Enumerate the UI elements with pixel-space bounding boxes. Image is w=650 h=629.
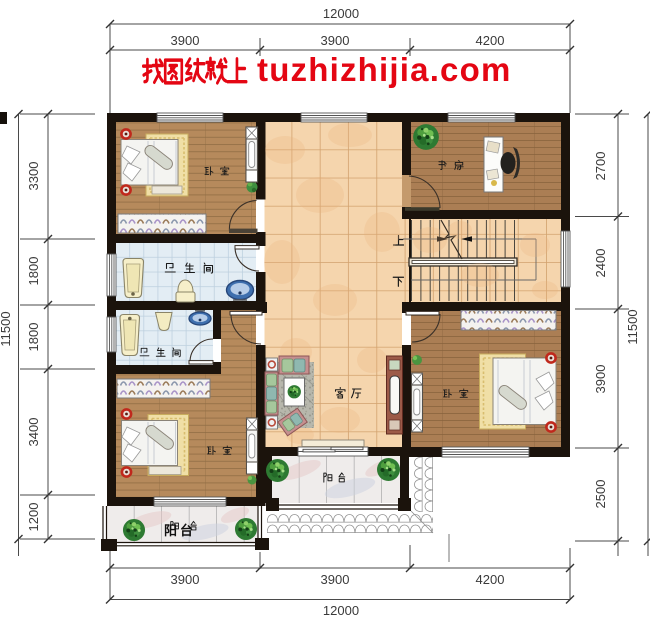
svg-text:3900: 3900 [321,33,350,48]
svg-text:2700: 2700 [593,152,608,181]
svg-text:12000: 12000 [323,603,359,618]
svg-text:1800: 1800 [26,257,41,286]
svg-text:3900: 3900 [171,572,200,587]
svg-text:3900: 3900 [321,572,350,587]
svg-text:12000: 12000 [323,6,359,21]
svg-text:3300: 3300 [26,162,41,191]
svg-text:阳台: 阳台 [164,523,196,538]
svg-text:2400: 2400 [593,249,608,278]
svg-text:1200: 1200 [26,503,41,532]
svg-text:3900: 3900 [171,33,200,48]
svg-text:1800: 1800 [26,323,41,352]
svg-text:2500: 2500 [593,480,608,509]
svg-text:4200: 4200 [476,572,505,587]
svg-text:tuzhizhijia.com: tuzhizhijia.com [257,51,512,88]
svg-text:3400: 3400 [26,418,41,447]
svg-text:11500: 11500 [625,309,640,344]
svg-text:3900: 3900 [593,365,608,394]
svg-text:4200: 4200 [476,33,505,48]
svg-text:11500: 11500 [0,311,13,346]
